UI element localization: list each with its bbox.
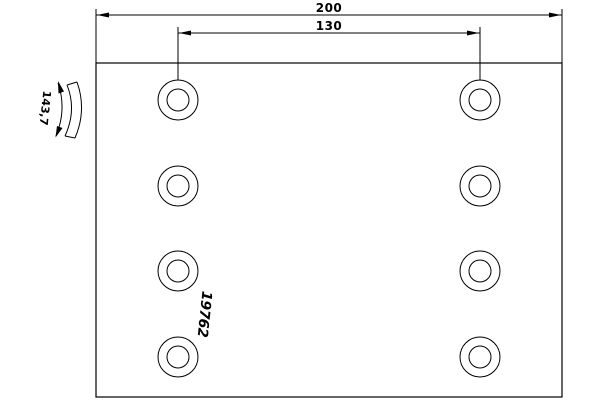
hole-spacing-label: 130 (316, 19, 343, 33)
arc-arrowhead-bottom-icon (56, 126, 63, 138)
overall-length-label: 200 (316, 1, 343, 15)
technical-drawing: 200 130 143,7 (0, 0, 600, 400)
section-inner-arc (65, 85, 72, 136)
arrowhead-left-icon (179, 31, 191, 36)
section-top-cap (67, 82, 77, 85)
drawing-canvas: 200 130 143,7 (0, 0, 600, 400)
arc-arrowhead-top-icon (58, 81, 64, 94)
lining-plate-outline (96, 63, 562, 397)
arrowhead-right-icon (549, 13, 561, 18)
arrowhead-left-icon (97, 13, 109, 18)
arc-width-label: 143,7 (37, 90, 54, 126)
section-outer-arc (75, 82, 82, 138)
curved-section-symbol: 143,7 (37, 81, 82, 138)
section-bottom-cap (65, 136, 75, 138)
arrowhead-right-icon (467, 31, 479, 36)
